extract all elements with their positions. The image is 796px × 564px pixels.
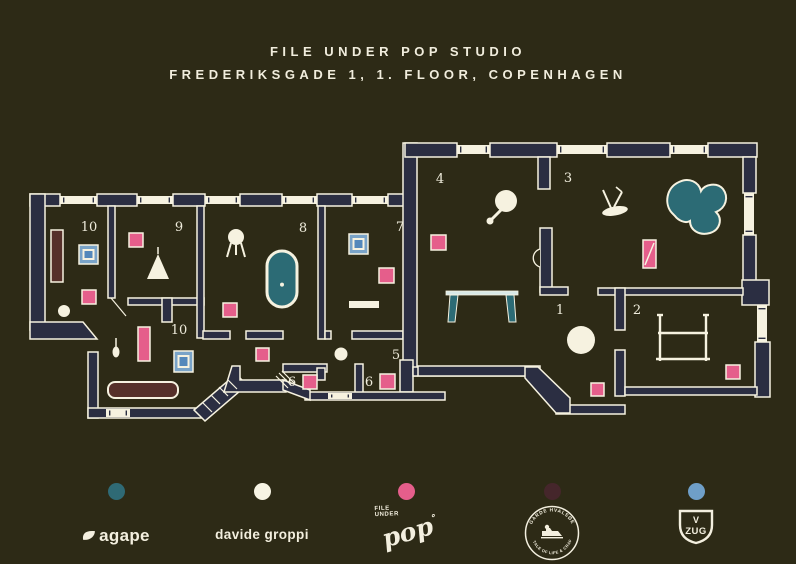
exhibit-marker (303, 375, 317, 389)
tripod-lamp-furniture (227, 229, 245, 257)
room-label-4: 4 (436, 172, 444, 187)
agape-leaf-icon (82, 530, 96, 542)
v-zug-shield-icon: V ZUG (676, 509, 716, 545)
davide-groppi-dot (254, 483, 271, 500)
v-zug-v: V (693, 515, 699, 525)
rack-furniture (656, 315, 710, 361)
table-furniture (446, 291, 518, 322)
file-under-pop-logo: FILE UNDER pop˚ (373, 504, 439, 545)
exhibit-marker (380, 374, 395, 389)
exhibit-marker (129, 233, 143, 247)
garde-hvalsoe-dot (544, 483, 561, 500)
room-label-3: 3 (564, 171, 572, 186)
floorplan-poster: FILE UNDER POP STUDIO FREDERIKSGADE 1, 1… (0, 0, 796, 564)
svg-text:GARDE HVALSØE: GARDE HVALSØE (528, 507, 575, 525)
pendant-furniture (113, 338, 120, 358)
bathtub-furniture (267, 251, 297, 307)
v-zug-shield: V ZUG (676, 509, 716, 550)
dot-furniture (58, 305, 70, 317)
legend-item-agape: agape (41, 483, 191, 546)
mirror-furniture (487, 190, 518, 225)
garde-arc-top-text: GARDE HVALSØE (528, 507, 575, 525)
legend-item-v-zug: V ZUG (621, 483, 771, 550)
legend: agape davide groppi FILE UNDER pop˚ (0, 483, 796, 564)
garde-hvalsoe-stamp-icon: GARDE HVALSØE A TALE OF LIFE & CRAFT (522, 503, 582, 563)
agape-label: agape (99, 526, 150, 546)
file-under-pop-dot (398, 483, 415, 500)
triangle-lamp-furniture (147, 247, 169, 279)
garde-hvalsoe-stamp: GARDE HVALSØE A TALE OF LIFE & CRAFT (522, 503, 582, 564)
agape-logo: agape (82, 526, 150, 546)
room-label-8: 8 (299, 221, 307, 236)
exhibit-marker (82, 290, 96, 304)
cabinet-furniture (51, 230, 63, 282)
room-label-9: 9 (175, 220, 183, 235)
agape-dot (108, 483, 125, 500)
room-label-6: 6 (365, 375, 373, 390)
blob-furniture (667, 180, 726, 234)
walls (30, 143, 770, 421)
v-zug-zug: ZUG (685, 526, 707, 537)
dot-furniture (335, 348, 348, 361)
exhibit-marker (256, 348, 269, 361)
exhibit-marker (726, 365, 740, 379)
wood-plane-icon (541, 525, 563, 539)
exhibit-marker (591, 383, 604, 396)
room-label-7: 7 (396, 220, 404, 235)
floorplan-drawing: 10987431056612 (0, 0, 796, 564)
slashrect-furniture (643, 240, 656, 268)
room-label-1: 1 (556, 303, 564, 318)
room-label-10: 10 (171, 323, 188, 338)
pinkrect-furniture (138, 327, 150, 361)
legend-item-file-under-pop: FILE UNDER pop˚ (331, 483, 481, 543)
room-label-6: 6 (288, 375, 296, 390)
appliance-furniture (349, 234, 368, 254)
exhibit-marker (379, 268, 394, 283)
room-label-10: 10 (81, 220, 98, 235)
sprout-furniture (601, 187, 628, 218)
appliance-furniture (174, 351, 193, 372)
exhibit-marker (223, 303, 237, 317)
dot-furniture (567, 326, 595, 354)
legend-item-davide-groppi: davide groppi (187, 483, 337, 542)
sofa-furniture (108, 382, 178, 398)
shelf-furniture (349, 301, 379, 308)
room-label-2: 2 (633, 303, 641, 318)
davide-groppi-logo: davide groppi (215, 527, 309, 542)
legend-item-garde-hvalsoe: GARDE HVALSØE A TALE OF LIFE & CRAFT (477, 483, 627, 564)
appliance-furniture (79, 245, 98, 264)
v-zug-dot (688, 483, 705, 500)
room-label-5: 5 (392, 348, 400, 363)
exhibit-marker (431, 235, 446, 250)
